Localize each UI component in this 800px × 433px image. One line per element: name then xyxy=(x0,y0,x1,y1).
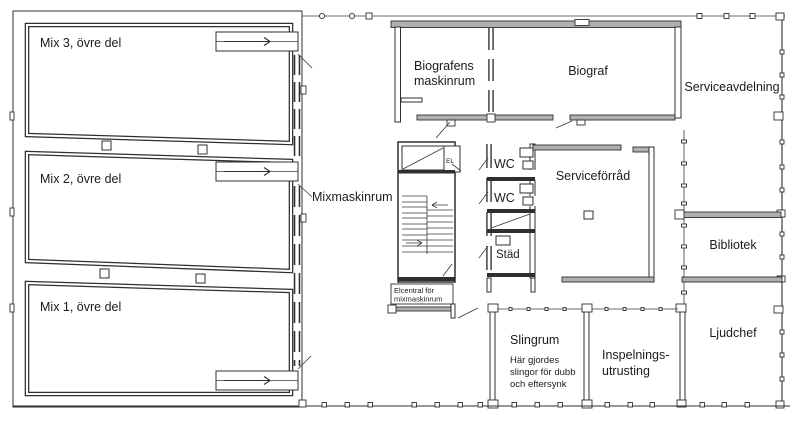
room-wc-upper-label: WC xyxy=(494,157,515,171)
serviceforrad-room: Serviceförråd xyxy=(533,145,654,282)
door-swing xyxy=(556,121,572,128)
room-wc-lower-label: WC xyxy=(494,191,515,205)
biograf-left-wall xyxy=(395,27,401,122)
floor-plan-drawing: Mix 3, övre del Mix 2, övre del Mix 1, ö… xyxy=(0,0,800,433)
room-bibliotek-label: Bibliotek xyxy=(709,238,757,252)
corridor-mixmaskinrum: Mixmaskinrum xyxy=(302,13,785,204)
room-inspelnings-label-2: utrusting xyxy=(602,364,650,378)
door-swing xyxy=(458,308,478,318)
elcentral-label-2: mixmaskinrum xyxy=(394,295,442,304)
elcentral: Elcentral för mixmaskinrum xyxy=(388,284,478,318)
room-mix-3-label: Mix 3, övre del xyxy=(40,36,121,50)
biograf-top-wall xyxy=(391,21,681,28)
room-biografens-maskinrum-label-1: Biografens xyxy=(414,59,474,73)
room-serviceavdelning-label: Serviceavdelning xyxy=(684,80,779,94)
room-stad-label: Städ xyxy=(496,249,520,261)
ljudchef-room: Ljudchef xyxy=(676,304,757,407)
biograf-right-wall xyxy=(675,27,681,118)
slingrum-note-1: Här gjordes xyxy=(510,355,559,366)
mix-building: Mix 3, övre del Mix 2, övre del Mix 1, ö… xyxy=(10,11,312,407)
room-serviceforrad-label: Serviceförråd xyxy=(556,169,630,183)
corridor-label: Mixmaskinrum xyxy=(312,190,393,204)
floor-plan: Mix 3, övre del Mix 2, övre del Mix 1, ö… xyxy=(0,0,800,433)
column-line xyxy=(497,308,583,311)
door-swing xyxy=(436,122,450,138)
bibliotek-room: Bibliotek xyxy=(675,210,782,282)
room-mix-2-label: Mix 2, övre del xyxy=(40,172,121,186)
room-inspelnings-label-1: Inspelnings- xyxy=(602,348,669,362)
el-closet-label: EL xyxy=(446,158,454,165)
wc-block: WC WC Städ xyxy=(479,144,536,292)
room-biograf-label: Biograf xyxy=(568,64,608,78)
slingrum-note-2: slingor för dubb xyxy=(510,367,575,378)
column-markers xyxy=(697,13,785,408)
room-mix-1-label: Mix 1, övre del xyxy=(40,300,121,314)
serviceavdelning-area: Serviceavdelning xyxy=(682,13,786,408)
stairwell: EL xyxy=(398,142,461,282)
column-marker xyxy=(366,13,372,19)
inspelnings-room: Inspelnings- utrusting xyxy=(582,304,678,408)
room-biografens-maskinrum-label-2: maskinrum xyxy=(414,74,475,88)
room-slingrum-label: Slingrum xyxy=(510,333,559,347)
column-line xyxy=(592,308,678,311)
slingrum-note-3: och eftersynk xyxy=(510,379,567,390)
slingrum-room: Slingrum Här gjordes slingor för dubb oc… xyxy=(488,304,583,408)
column-marker xyxy=(319,13,324,18)
biograf-block: Biografens maskinrum Biograf xyxy=(391,20,681,139)
column-marker xyxy=(349,13,354,18)
room-ljudchef-label: Ljudchef xyxy=(709,326,757,340)
